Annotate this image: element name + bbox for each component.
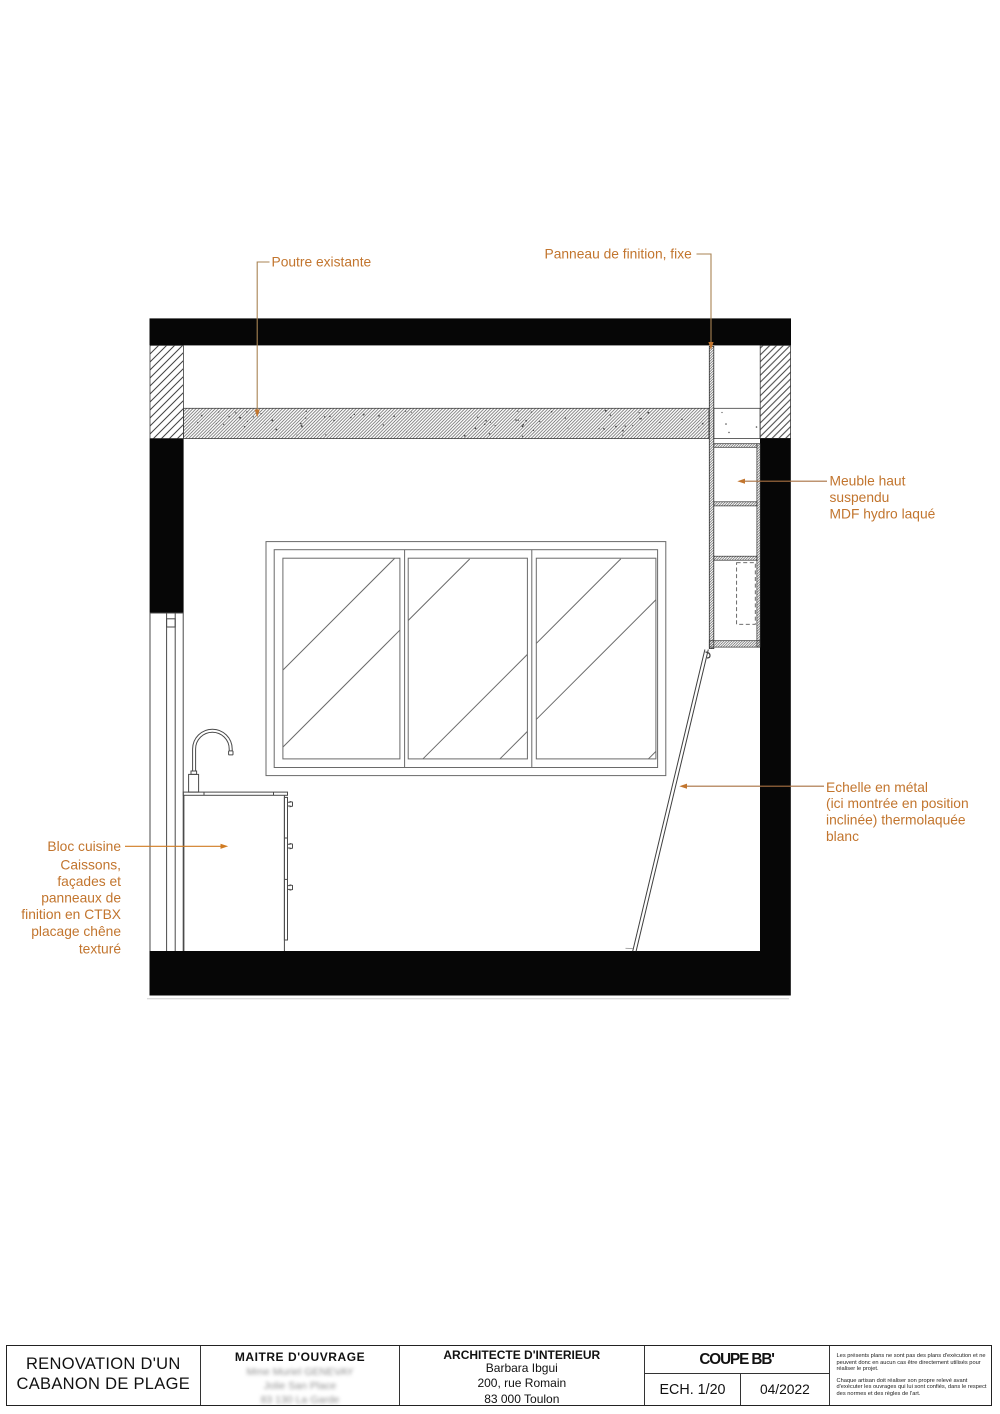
svg-text:inclinée) thermolaquée: inclinée) thermolaquée	[826, 813, 966, 828]
svg-text:Poutre existante: Poutre existante	[272, 255, 372, 270]
svg-text:Panneau de finition, fixe: Panneau de finition, fixe	[545, 247, 693, 262]
svg-text:Echelle en métal: Echelle en métal	[826, 780, 928, 795]
svg-text:panneaux de: panneaux de	[41, 890, 121, 905]
svg-text:façades et: façades et	[57, 874, 121, 889]
svg-text:texturé: texturé	[79, 942, 122, 957]
svg-text:Caissons,: Caissons,	[60, 857, 121, 872]
svg-text:Bloc cuisine: Bloc cuisine	[47, 839, 121, 854]
svg-text:Meuble haut: Meuble haut	[830, 474, 906, 489]
svg-text:placage chêne: placage chêne	[31, 924, 121, 939]
svg-text:suspendu: suspendu	[830, 490, 890, 505]
svg-text:blanc: blanc	[826, 829, 859, 844]
svg-text:MDF hydro laqué: MDF hydro laqué	[830, 506, 936, 521]
svg-text:finition en CTBX: finition en CTBX	[21, 907, 121, 922]
svg-text:(ici montrée en position: (ici montrée en position	[826, 796, 969, 811]
